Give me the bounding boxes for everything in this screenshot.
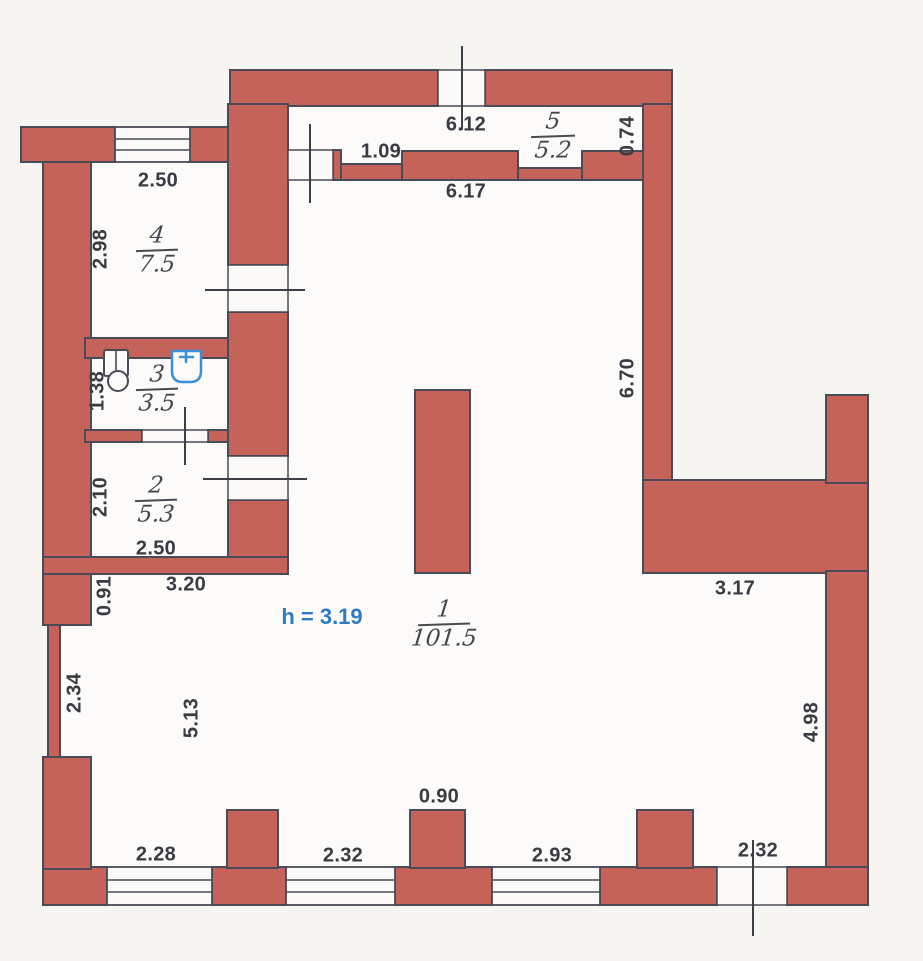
wall-left-upper [43,127,91,625]
wall-room3-room2-right [208,430,228,442]
dim-bottom-pier: 0.90 [419,786,459,809]
dim-room4-left: 2.98 [90,229,113,269]
window-bottom-1 [107,867,212,905]
wall-bottom-2 [212,867,286,905]
wall-room5-s2 [341,164,402,180]
dim-room5-right: 0.74 [617,116,640,156]
room-number: 4 [135,223,180,247]
room-area: 5.3 [134,503,179,527]
room-label-2: 2 5.3 [135,473,177,526]
room-area: 101.5 [410,627,478,651]
wall-interior-v2 [228,312,288,456]
wall-interior-v1 [228,104,288,265]
door-opening-room3 [142,430,208,442]
wall-right-stub [826,395,868,483]
room-label-3: 3 3.5 [136,362,178,415]
dim-bottom-window-3: 2.93 [532,845,572,868]
door-opening-room4 [228,265,288,312]
wall-top-left [230,70,438,106]
dim-top-window-width: 6.12 [446,114,486,137]
room-number: 1 [410,597,478,621]
dim-room1-right-ext: 3.17 [715,578,755,601]
wall-room5-s4 [518,168,582,180]
wall-bottom-5 [787,867,868,905]
dim-left-step: 0.91 [94,576,117,616]
ceiling-height-label: h = 3.19 [281,604,362,630]
room-label-1: 1 101.5 [411,597,477,650]
toilet-bowl [108,371,128,391]
wall-left-tbar [21,127,115,162]
wall-bottom-3 [395,867,492,905]
wall-room4-top-right [188,127,232,162]
wall-bottom-1 [43,867,107,905]
room-label-5: 5 5.2 [531,109,575,162]
room-number: 3 [135,362,180,386]
dim-room1-right-wall: 6.70 [617,358,640,398]
dim-room3-left: 1.38 [87,371,110,411]
room-number: 2 [134,473,179,497]
wall-bottom-4 [600,867,717,905]
column-center [415,390,470,573]
dim-bottom-window-2: 2.32 [323,845,363,868]
wall-left-thin [48,625,60,757]
dim-room1-left-side: 5.13 [181,698,204,738]
wall-room3-room2-left [85,430,142,442]
room-number: 5 [530,109,577,133]
wall-room5-s1 [333,150,341,180]
dim-room1-top-left: 3.20 [166,574,206,597]
room-area: 7.5 [135,253,180,277]
dim-room2-bottom: 2.50 [136,538,176,561]
wall-left-lower [43,757,91,869]
wall-right-band [643,480,868,573]
room-area: 5.2 [530,139,577,163]
wall-right-upper [643,104,672,482]
pier-3 [637,810,693,868]
floor-plan-page: 6.12 1.09 6.17 0.74 2.50 2.98 1.38 2.10 … [0,0,923,961]
room-label-4: 4 7.5 [136,223,178,276]
dim-room4-top: 2.50 [138,170,178,193]
pier-1 [227,810,278,868]
dim-room1-top: 6.17 [446,181,486,204]
room-area: 3.5 [135,392,180,416]
wall-room5-s3 [402,151,518,180]
window-bottom-2 [286,867,395,905]
window-bottom-3 [492,867,600,905]
dim-room2-left: 2.10 [90,477,113,517]
window-room4 [115,127,190,162]
dim-left-mid: 2.34 [64,673,87,713]
dim-right-lower-wall: 4.98 [801,702,824,742]
dim-bottom-window-1: 2.28 [136,844,176,867]
wall-right-lower [826,571,868,905]
wall-top-right [485,70,672,106]
dim-bottom-door: 2.32 [738,840,778,863]
dim-room5-step: 1.09 [361,141,401,164]
pier-2 [410,810,465,868]
